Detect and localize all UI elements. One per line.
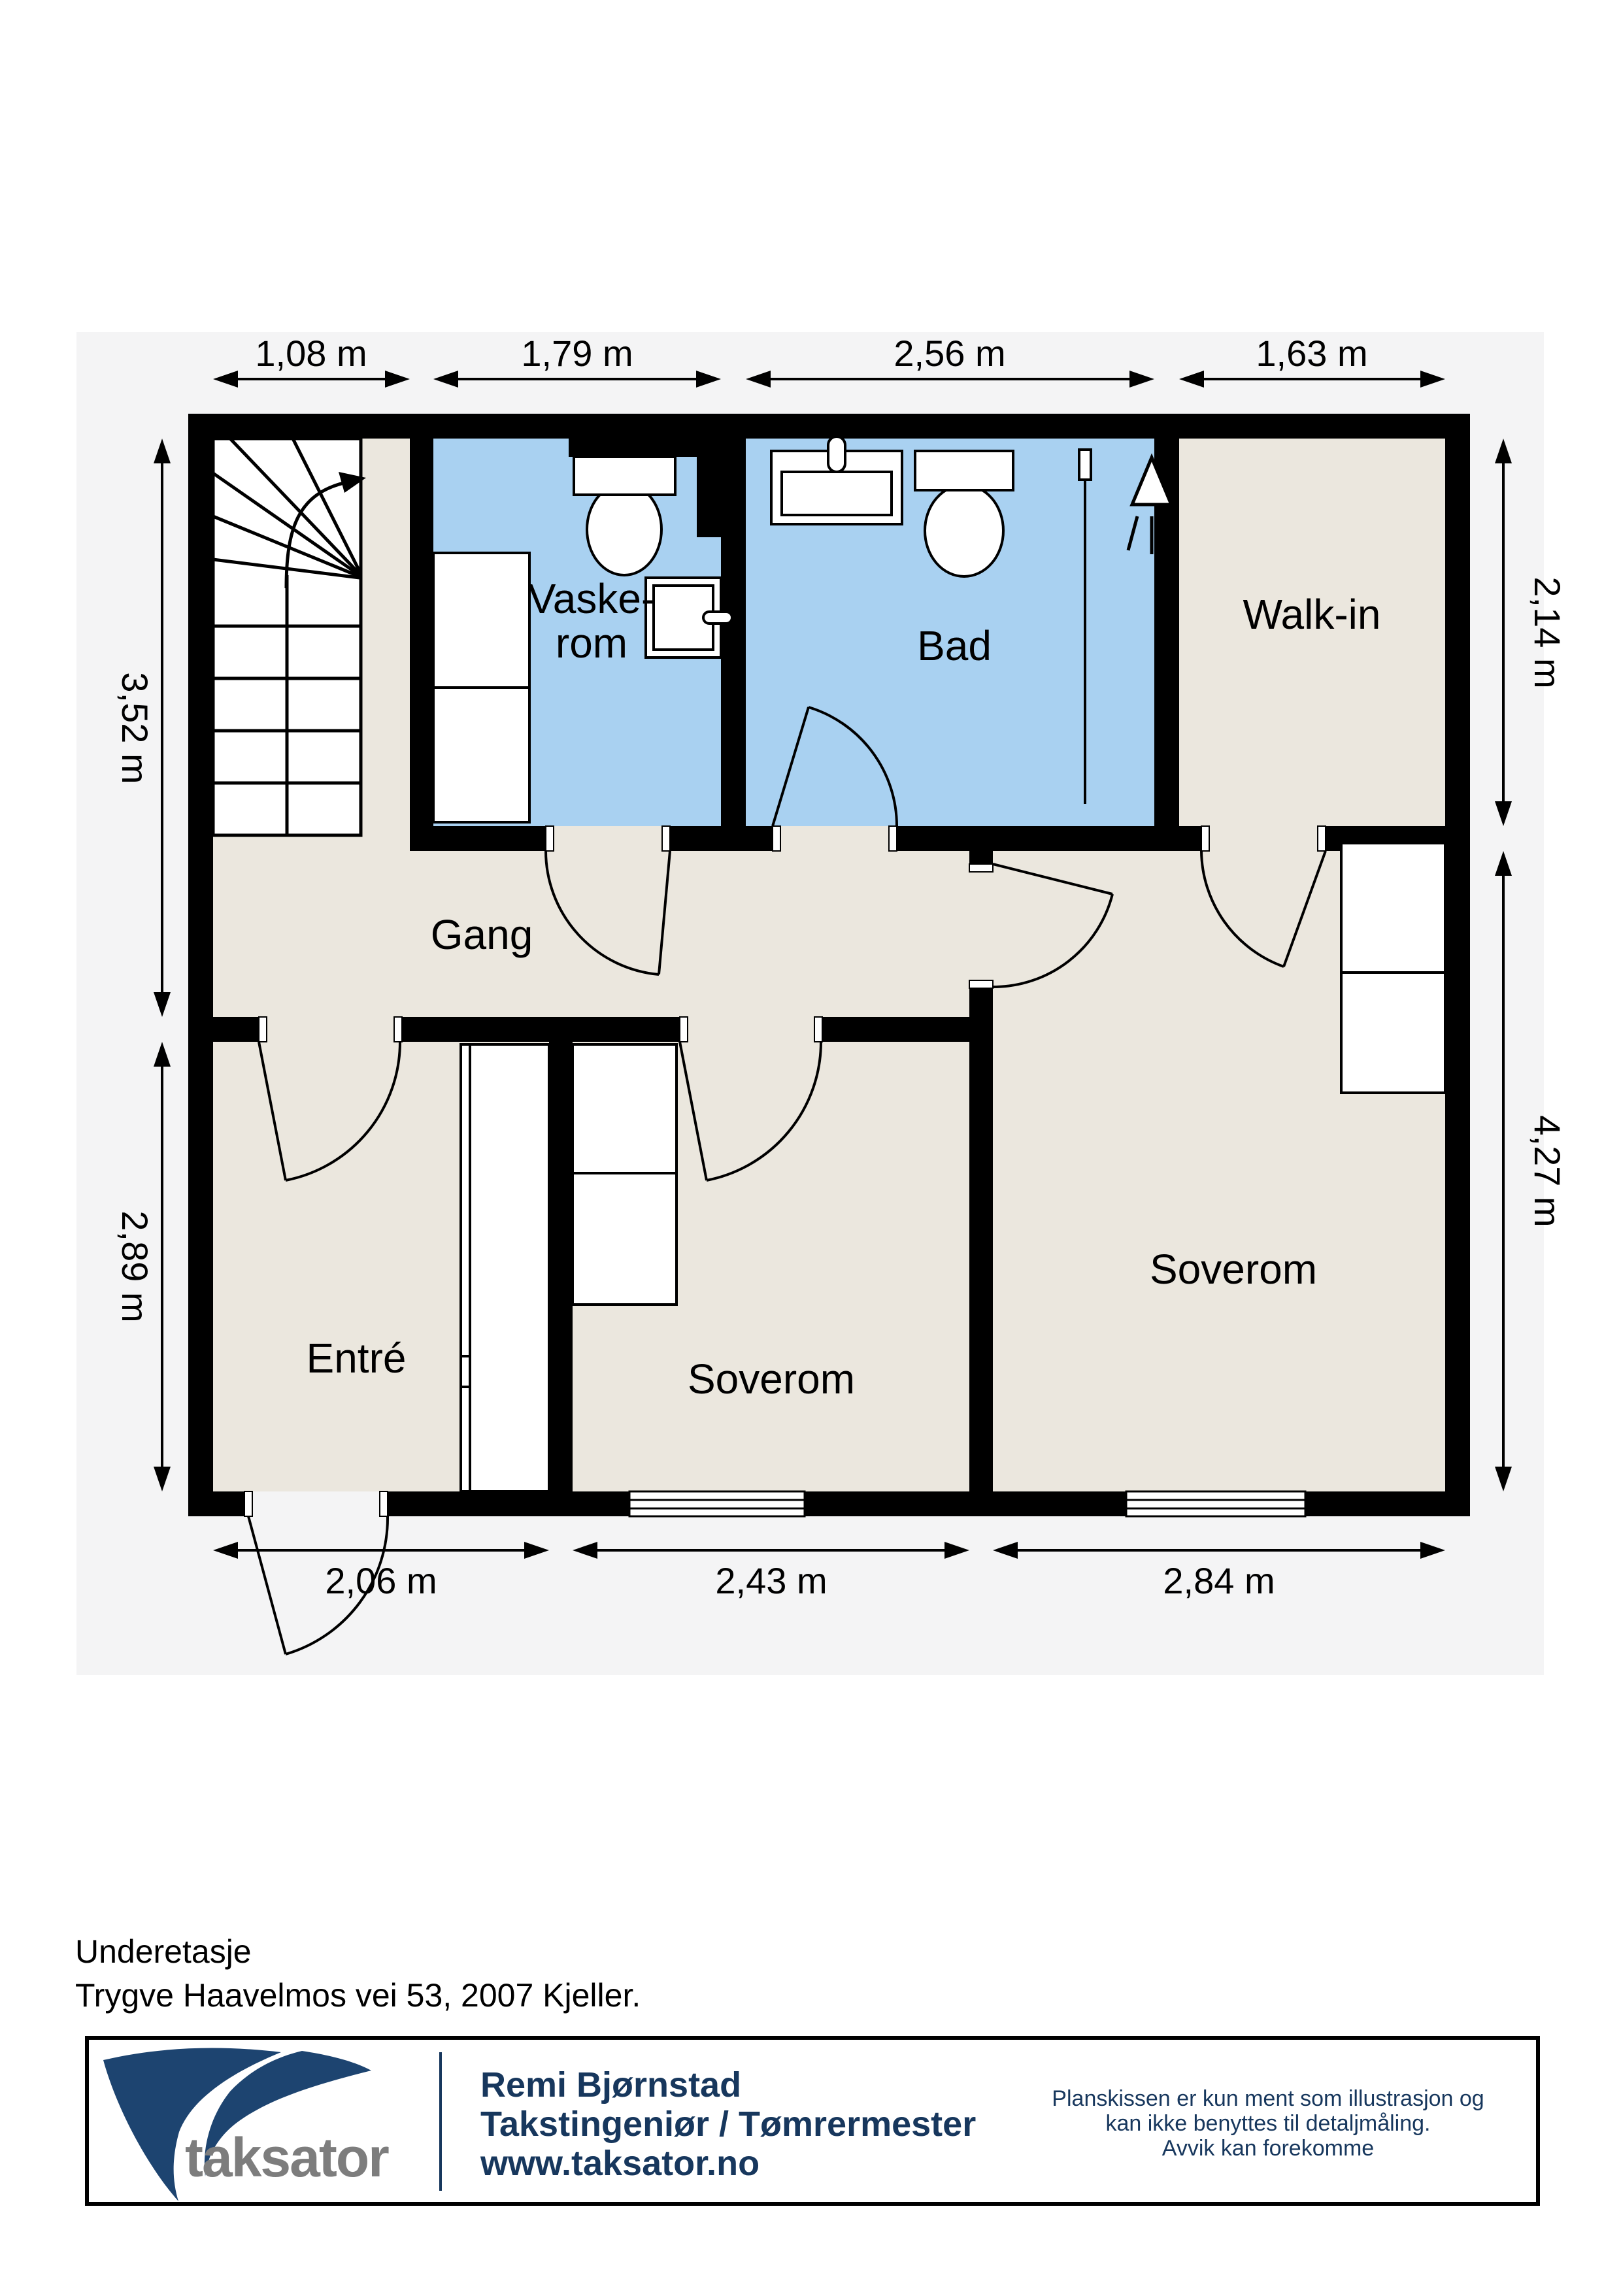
floor-title: Underetasje [75, 1933, 252, 1970]
dim-top-2: 1,79 m [521, 333, 633, 374]
entre-closet-icon [461, 1044, 549, 1491]
floorplan-page: 1,08 m 1,79 m 2,56 m 1,63 m 3,52 m 2,89 … [0, 0, 1621, 2293]
room-label-entre: Entré [307, 1335, 407, 1382]
room-label-vaskerom-line2: rom [556, 620, 627, 667]
room-label-walkin: Walk-in [1243, 591, 1381, 638]
dim-top-4: 1,63 m [1256, 333, 1367, 374]
vaskerom-sink-icon [646, 578, 732, 657]
room-label-soverom-mid: Soverom [688, 1356, 855, 1403]
disclaimer-line2: kan ikke benyttes til detaljmåling. [1105, 2111, 1430, 2136]
soverom-right-wardrobe-icon [1341, 843, 1445, 1093]
dim-bottom-1: 2,06 m [325, 1560, 437, 1601]
contact-title: Takstingeniør / Tømrermester [480, 2105, 976, 2144]
dim-right-2: 4,27 m [1527, 1115, 1568, 1227]
dim-left-1: 3,52 m [114, 672, 156, 784]
room-label-gang: Gang [431, 911, 533, 958]
room-label-bad: Bad [917, 622, 992, 669]
dim-left-2: 2,89 m [114, 1210, 156, 1322]
disclaimer-line3: Avvik kan forekomme [1162, 2136, 1374, 2161]
floorplan-canvas: 1,08 m 1,79 m 2,56 m 1,63 m 3,52 m 2,89 … [0, 0, 1621, 2293]
soverom-mid-wardrobe-icon [573, 1044, 677, 1305]
address-line: Trygve Haavelmos vei 53, 2007 Kjeller. [75, 1977, 641, 2014]
logo-wordmark: taksator [185, 2127, 389, 2188]
dim-bottom-3: 2,84 m [1163, 1560, 1275, 1601]
disclaimer-line1: Planskissen er kun ment som illustrasjon… [1052, 2086, 1484, 2111]
dim-top-3: 2,56 m [894, 333, 1005, 374]
dim-bottom-2: 2,43 m [715, 1560, 827, 1601]
contact-name: Remi Bjørnstad [480, 2065, 741, 2105]
footer-box: taksator Remi Bjørnstad Takstingeniør / … [87, 2038, 1538, 2204]
bad-sink-icon [771, 437, 902, 524]
room-label-vaskerom-line1: Vaske- [528, 575, 655, 622]
staircase-icon [213, 439, 361, 835]
contact-website: www.taksator.no [480, 2144, 760, 2183]
vaskerom-cabinet-icon [433, 553, 529, 822]
dim-top-1: 1,08 m [255, 333, 367, 374]
dim-right-1: 2,14 m [1527, 576, 1568, 688]
room-label-soverom-right: Soverom [1150, 1246, 1317, 1293]
